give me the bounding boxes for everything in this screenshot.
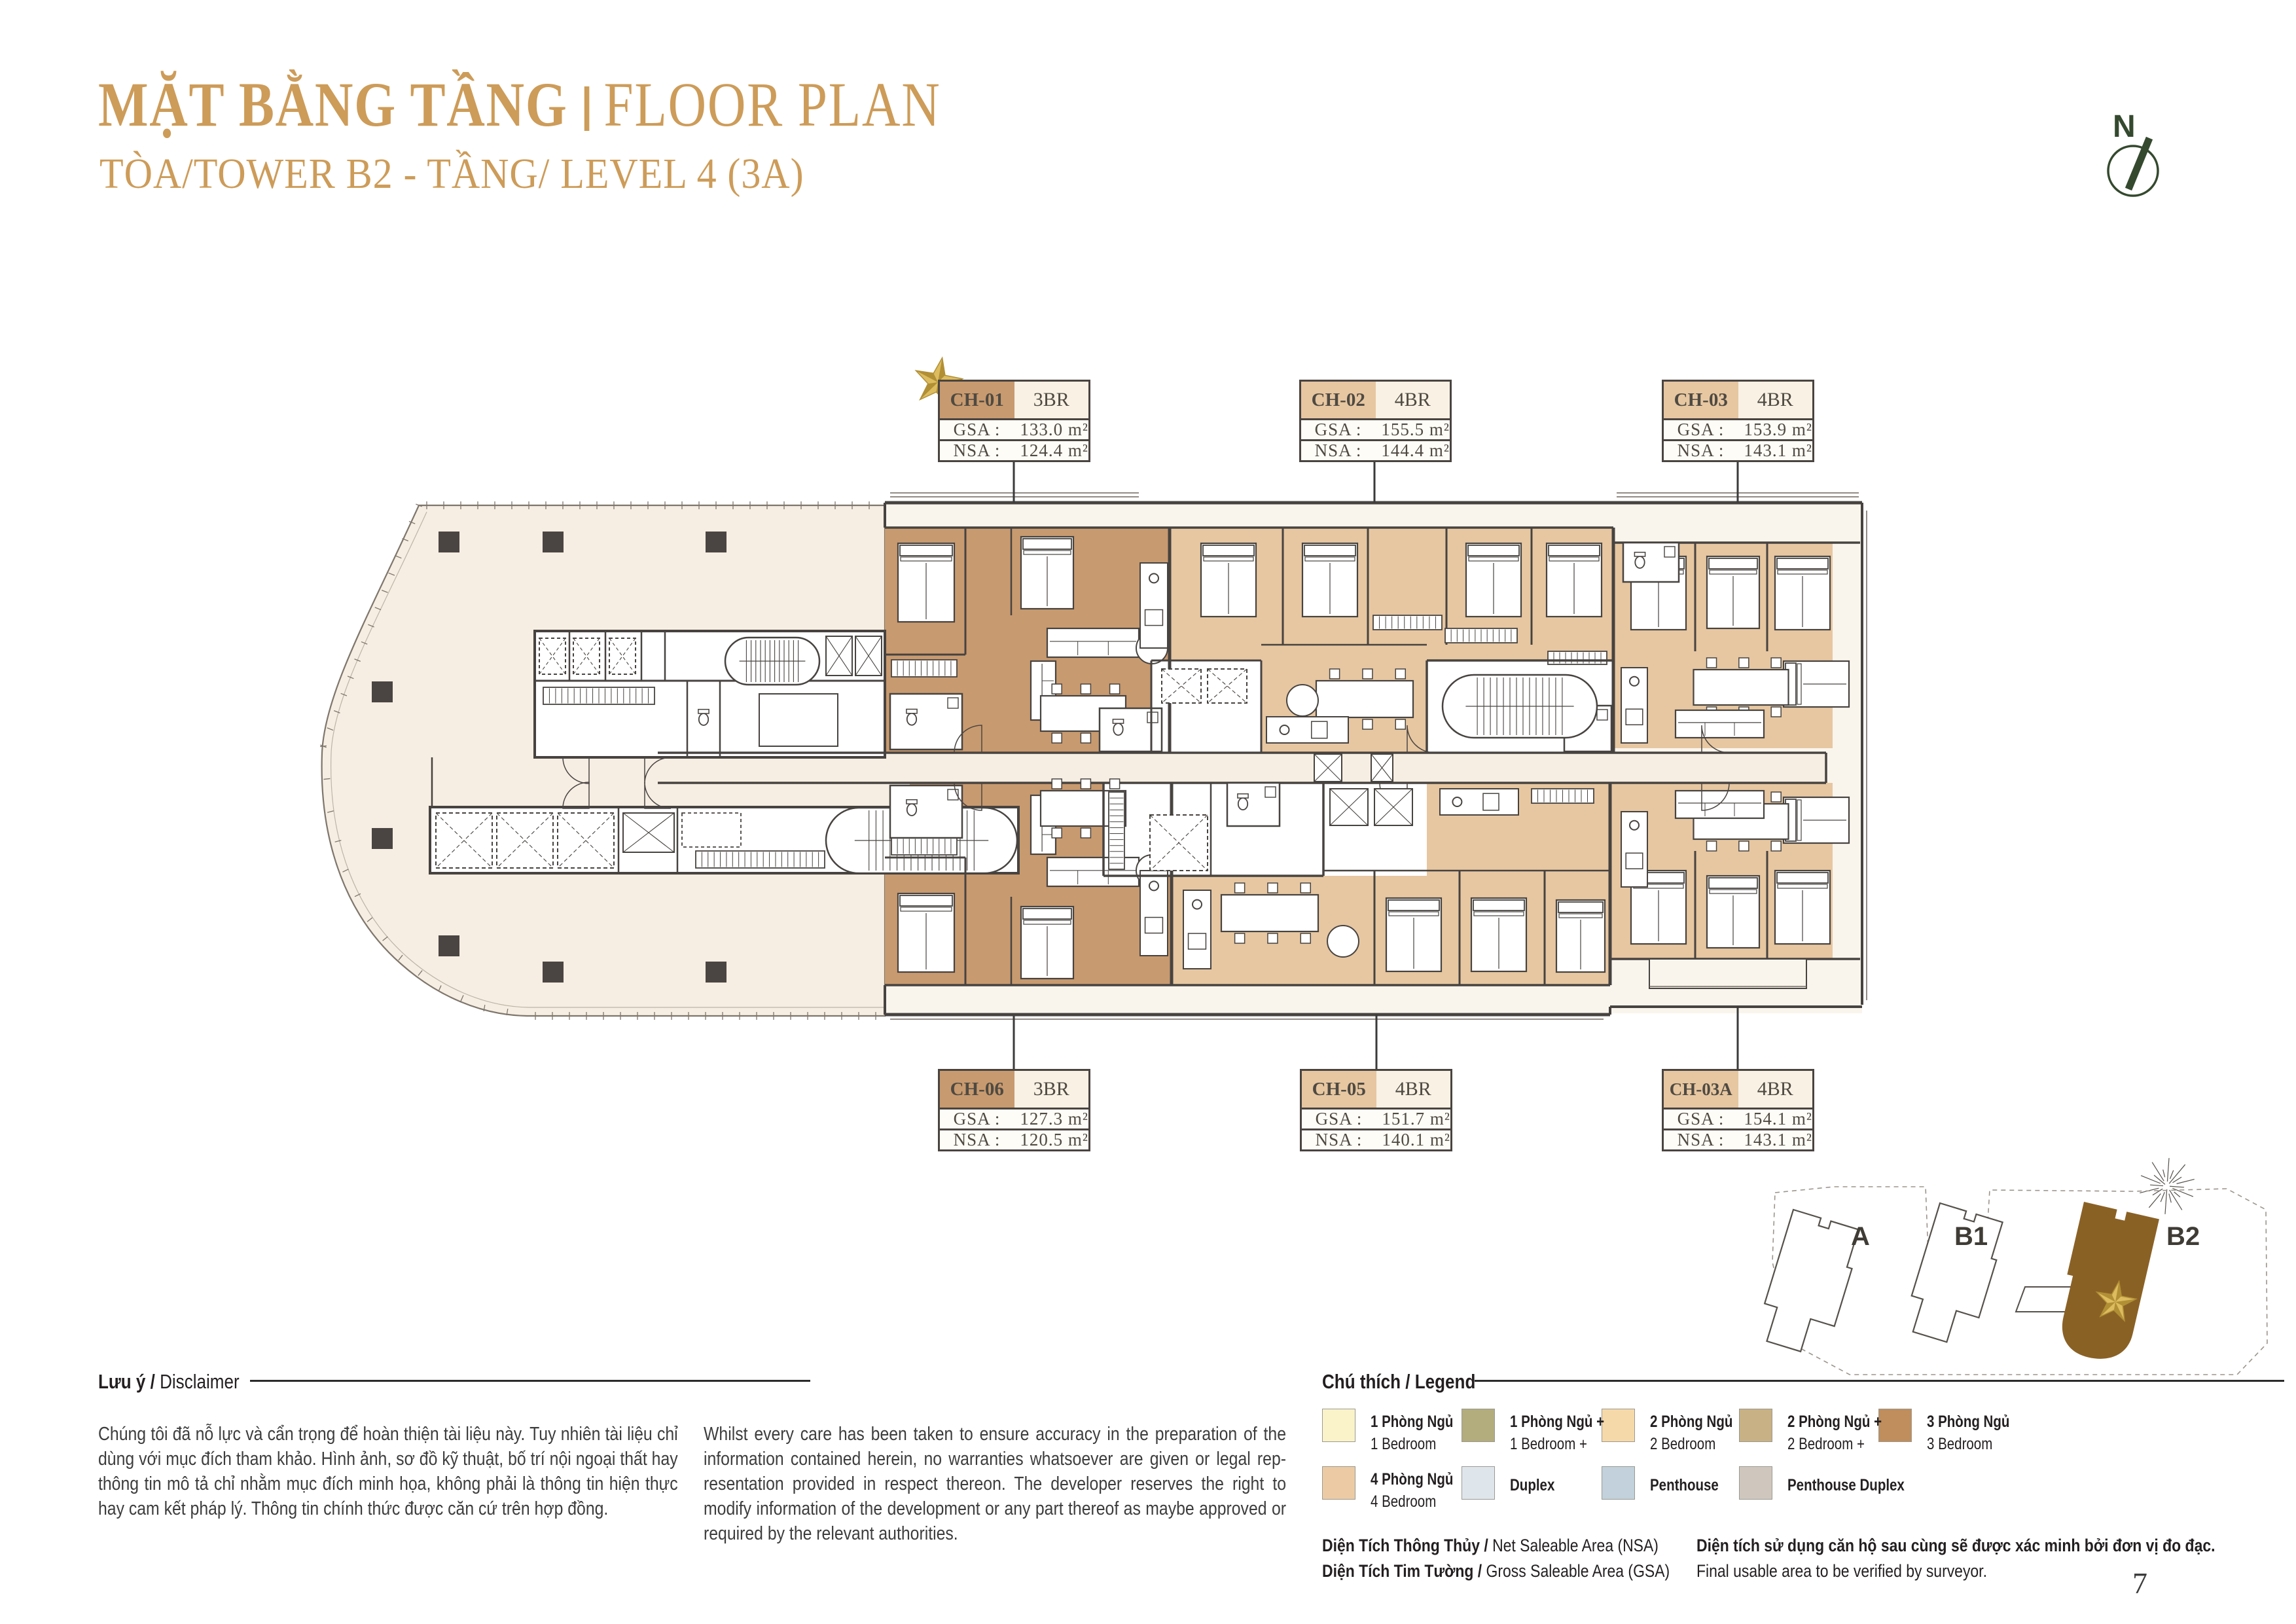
svg-text:B2: B2 bbox=[2166, 1222, 2200, 1251]
svg-text:N: N bbox=[2113, 109, 2136, 144]
svg-text:B1: B1 bbox=[1954, 1222, 1988, 1251]
svg-text:A: A bbox=[1851, 1222, 1870, 1251]
